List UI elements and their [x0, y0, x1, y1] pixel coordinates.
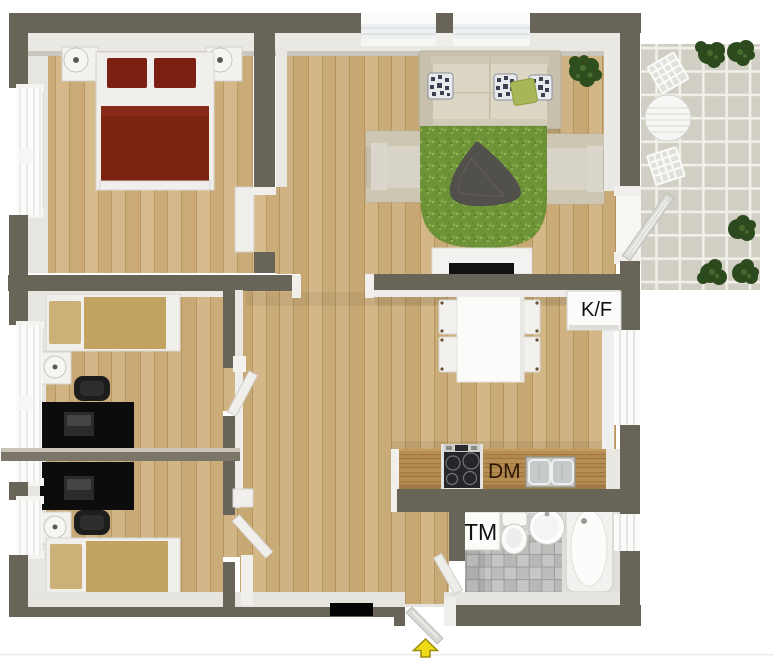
- svg-text:DM: DM: [488, 460, 521, 483]
- svg-text:K/F: K/F: [581, 299, 612, 321]
- svg-text:TM: TM: [464, 519, 497, 545]
